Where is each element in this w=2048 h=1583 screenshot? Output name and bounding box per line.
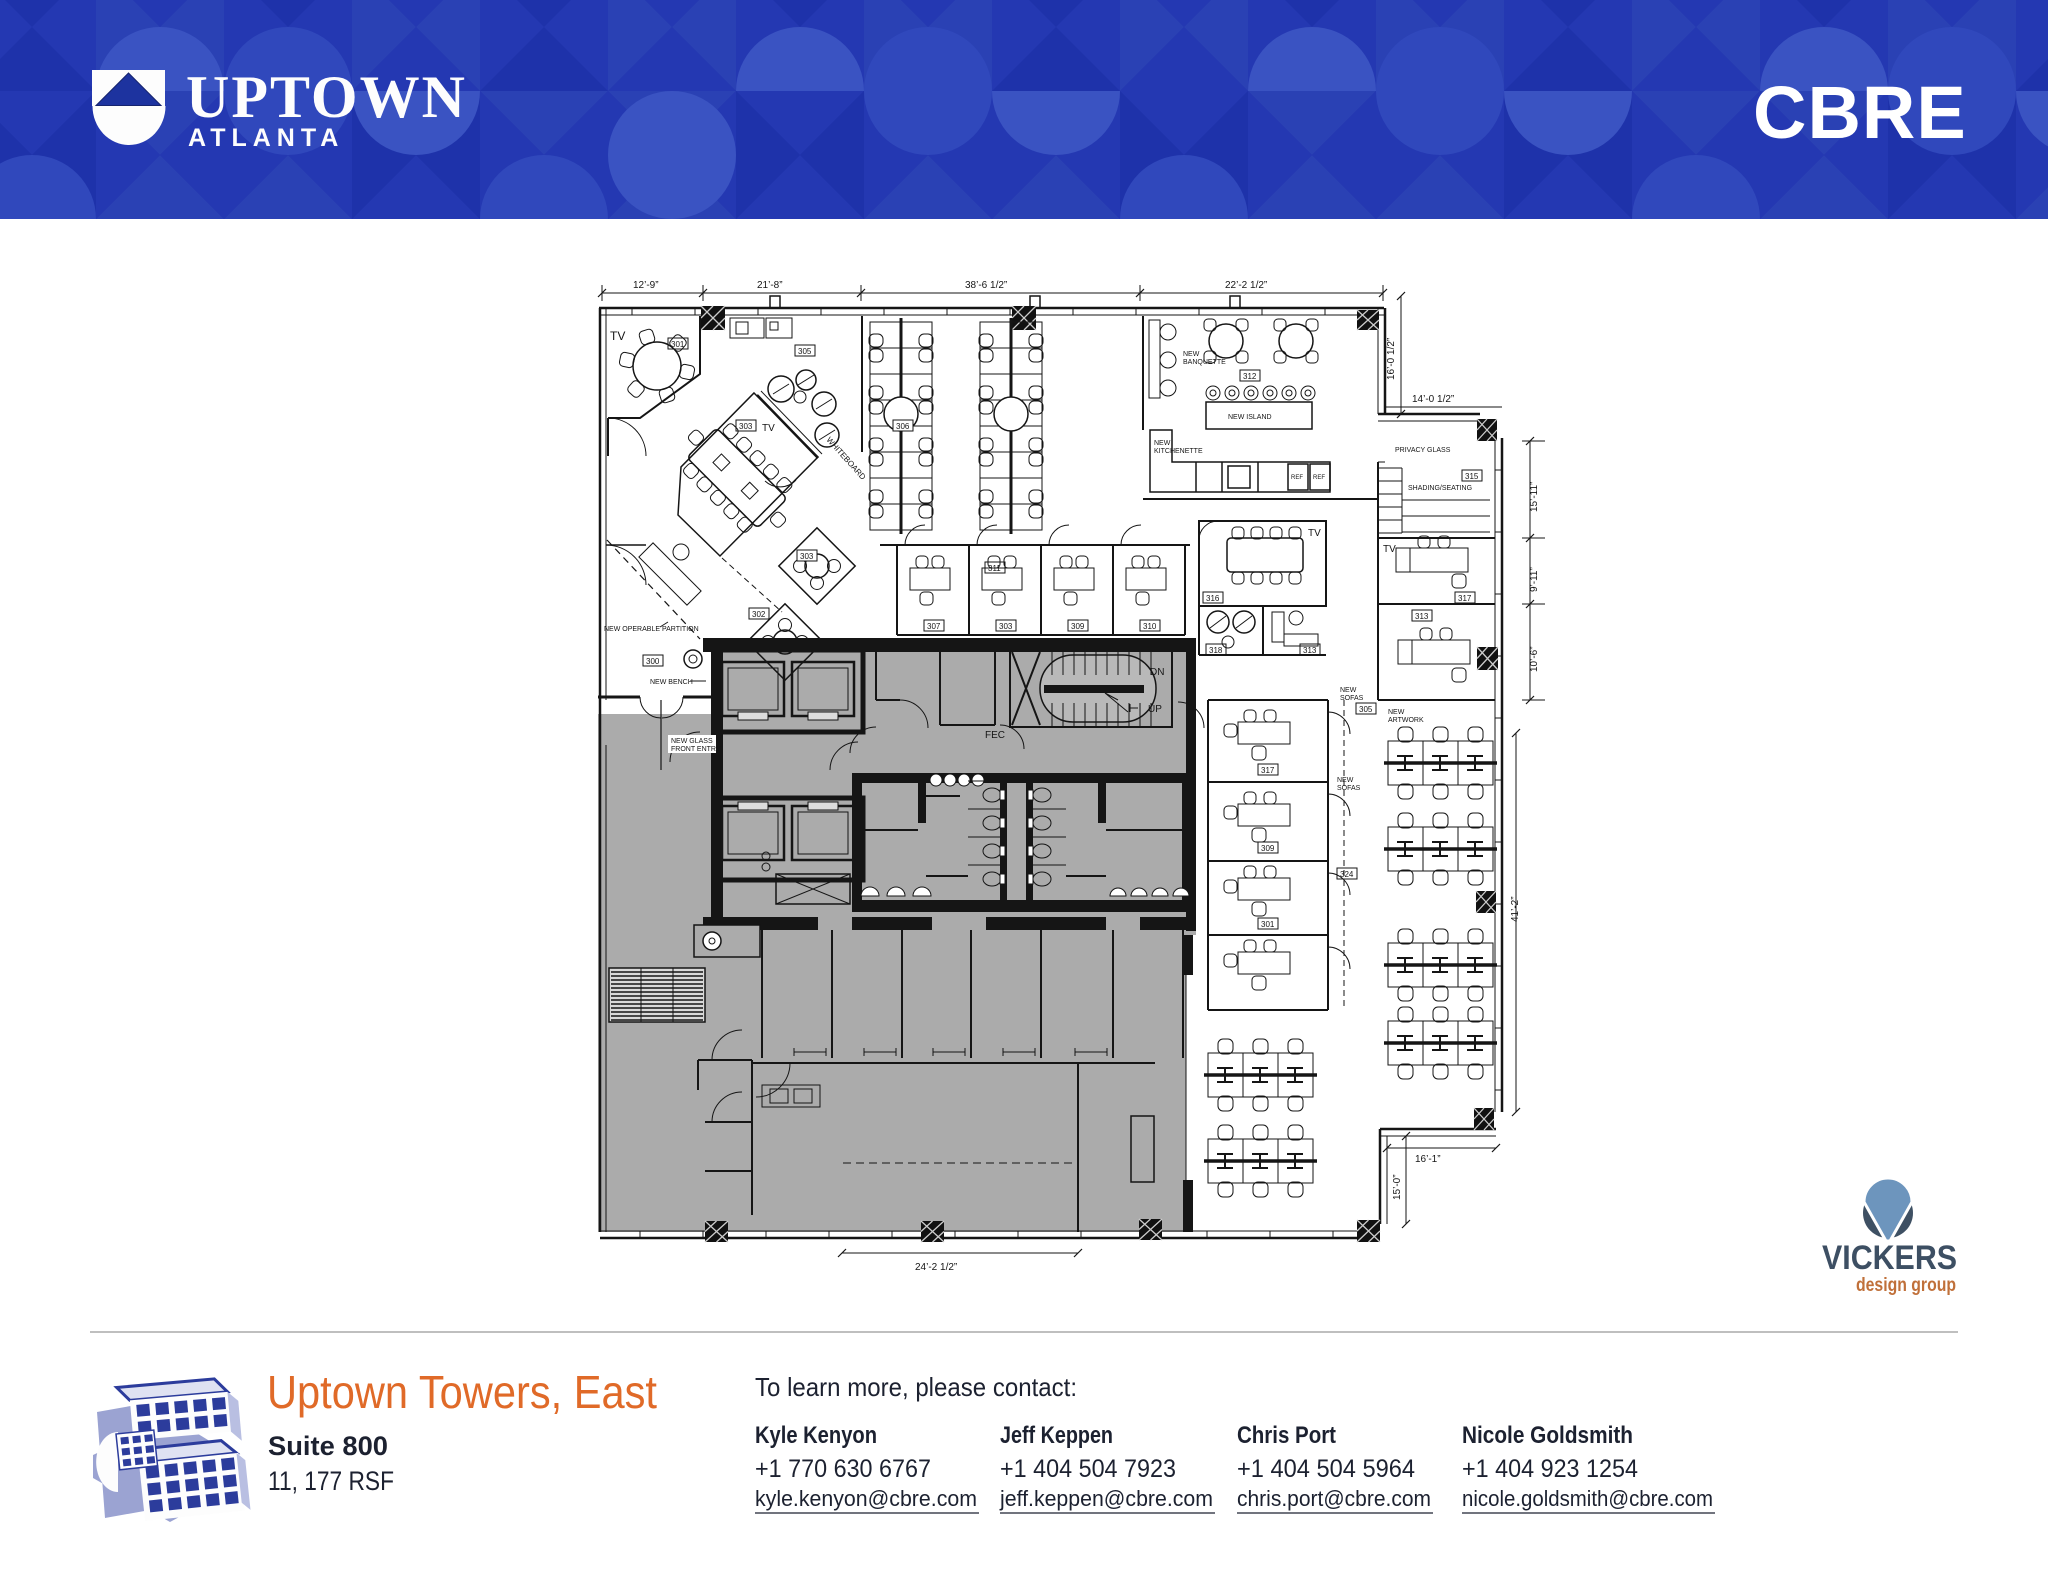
svg-text:309: 309 <box>1261 844 1275 853</box>
svg-text:kyle.kenyon@cbre.com: kyle.kenyon@cbre.com <box>755 1486 977 1511</box>
svg-text:303: 303 <box>739 422 753 431</box>
svg-text:9’-11”: 9’-11” <box>1529 567 1540 592</box>
svg-text:306: 306 <box>896 422 910 431</box>
svg-text:317: 317 <box>1261 766 1275 775</box>
svg-text:15’-11”: 15’-11” <box>1529 482 1540 512</box>
svg-text:22’-2 1/2”: 22’-2 1/2” <box>1225 280 1267 291</box>
svg-text:38’-6 1/2”: 38’-6 1/2” <box>965 280 1007 291</box>
svg-text:FEC: FEC <box>985 730 1005 741</box>
svg-text:PRIVACY GLASS: PRIVACY GLASS <box>1395 447 1451 454</box>
svg-text:16’-0 1/2”: 16’-0 1/2” <box>1386 338 1397 380</box>
svg-text:315: 315 <box>1465 472 1479 481</box>
svg-text:TV: TV <box>610 329 625 343</box>
svg-text:14’-0 1/2”: 14’-0 1/2” <box>1412 394 1454 405</box>
svg-text:303: 303 <box>800 552 814 561</box>
svg-text:302: 302 <box>752 610 766 619</box>
svg-text:CBRE: CBRE <box>1753 71 1967 154</box>
svg-text:+1 770 630 6767: +1 770 630 6767 <box>755 1455 931 1483</box>
svg-text:21’-8”: 21’-8” <box>757 280 783 291</box>
svg-text:SOFAS: SOFAS <box>1337 785 1361 792</box>
svg-text:REF: REF <box>1291 475 1303 481</box>
svg-text:ARTWORK: ARTWORK <box>1388 717 1424 724</box>
svg-text:313: 313 <box>1415 612 1429 621</box>
svg-text:301: 301 <box>1261 920 1275 929</box>
svg-text:301: 301 <box>671 340 685 349</box>
svg-text:NEW ISLAND: NEW ISLAND <box>1228 414 1272 421</box>
svg-text:313: 313 <box>1303 646 1317 655</box>
svg-text:41’-2”: 41’-2” <box>1510 896 1521 922</box>
svg-text:Suite 800: Suite 800 <box>268 1431 388 1461</box>
svg-text:316: 316 <box>1206 594 1220 603</box>
svg-text:305: 305 <box>1359 705 1373 714</box>
svg-text:KITCHENETTE: KITCHENETTE <box>1154 448 1203 455</box>
svg-text:NEW OPERABLE PARTITION: NEW OPERABLE PARTITION <box>604 626 699 633</box>
svg-text:+1 404 504 5964: +1 404 504 5964 <box>1237 1455 1415 1483</box>
svg-text:16’-1”: 16’-1” <box>1415 1154 1441 1165</box>
svg-text:303: 303 <box>999 622 1013 631</box>
svg-text:To learn more, please contact:: To learn more, please contact: <box>755 1372 1077 1402</box>
svg-text:24’-2 1/2”: 24’-2 1/2” <box>915 1262 957 1273</box>
svg-text:310: 310 <box>1143 622 1157 631</box>
svg-text:design group: design group <box>1856 1275 1956 1296</box>
svg-text:305: 305 <box>798 347 812 356</box>
svg-text:318: 318 <box>1209 646 1223 655</box>
svg-text:307: 307 <box>927 622 941 631</box>
svg-text:Chris Port: Chris Port <box>1237 1422 1336 1449</box>
svg-text:NEW BENCH: NEW BENCH <box>650 679 693 686</box>
svg-text:SHADING/SEATING: SHADING/SEATING <box>1408 485 1472 492</box>
svg-text:Nicole Goldsmith: Nicole Goldsmith <box>1462 1422 1633 1449</box>
svg-text:NEW: NEW <box>1340 687 1357 694</box>
svg-text:Jeff Keppen: Jeff Keppen <box>1000 1422 1113 1449</box>
svg-text:12’-9”: 12’-9” <box>633 280 659 291</box>
svg-text:TV: TV <box>762 423 775 434</box>
svg-text:REF: REF <box>1313 475 1325 481</box>
svg-text:UP: UP <box>1148 704 1162 715</box>
svg-text:nicole.goldsmith@cbre.com: nicole.goldsmith@cbre.com <box>1462 1486 1713 1511</box>
svg-text:BANQUETTE: BANQUETTE <box>1183 359 1226 366</box>
svg-text:309: 309 <box>1071 622 1085 631</box>
svg-text:UPTOWN: UPTOWN <box>186 64 467 130</box>
svg-text:317: 317 <box>1458 594 1472 603</box>
svg-text:FRONT ENTRY: FRONT ENTRY <box>671 746 721 753</box>
svg-text:+1 404 923 1254: +1 404 923 1254 <box>1462 1455 1638 1483</box>
svg-text:312: 312 <box>1243 372 1257 381</box>
svg-text:10’-6”: 10’-6” <box>1529 646 1540 672</box>
svg-text:NEW: NEW <box>1154 440 1171 447</box>
svg-text:ATLANTA: ATLANTA <box>188 124 344 152</box>
svg-text:chris.port@cbre.com: chris.port@cbre.com <box>1237 1486 1431 1511</box>
svg-text:11, 177 RSF: 11, 177 RSF <box>268 1466 394 1496</box>
svg-text:jeff.keppen@cbre.com: jeff.keppen@cbre.com <box>999 1486 1213 1511</box>
svg-text:+1 404 504 7923: +1 404 504 7923 <box>1000 1455 1176 1483</box>
svg-text:Uptown Towers, East: Uptown Towers, East <box>267 1366 657 1418</box>
svg-text:TV: TV <box>1383 544 1396 555</box>
svg-text:NEW: NEW <box>1337 777 1354 784</box>
svg-text:NEW: NEW <box>1183 351 1200 358</box>
svg-text:15’-0”: 15’-0” <box>1392 1174 1403 1200</box>
svg-text:VICKERS: VICKERS <box>1822 1239 1957 1277</box>
svg-text:300: 300 <box>646 657 660 666</box>
svg-text:324: 324 <box>1340 870 1354 879</box>
svg-text:TV: TV <box>1308 528 1321 539</box>
svg-text:DN: DN <box>1150 667 1164 678</box>
svg-text:NEW: NEW <box>1388 709 1405 716</box>
svg-text:Kyle Kenyon: Kyle Kenyon <box>755 1422 877 1449</box>
svg-text:NEW GLASS: NEW GLASS <box>671 738 713 745</box>
